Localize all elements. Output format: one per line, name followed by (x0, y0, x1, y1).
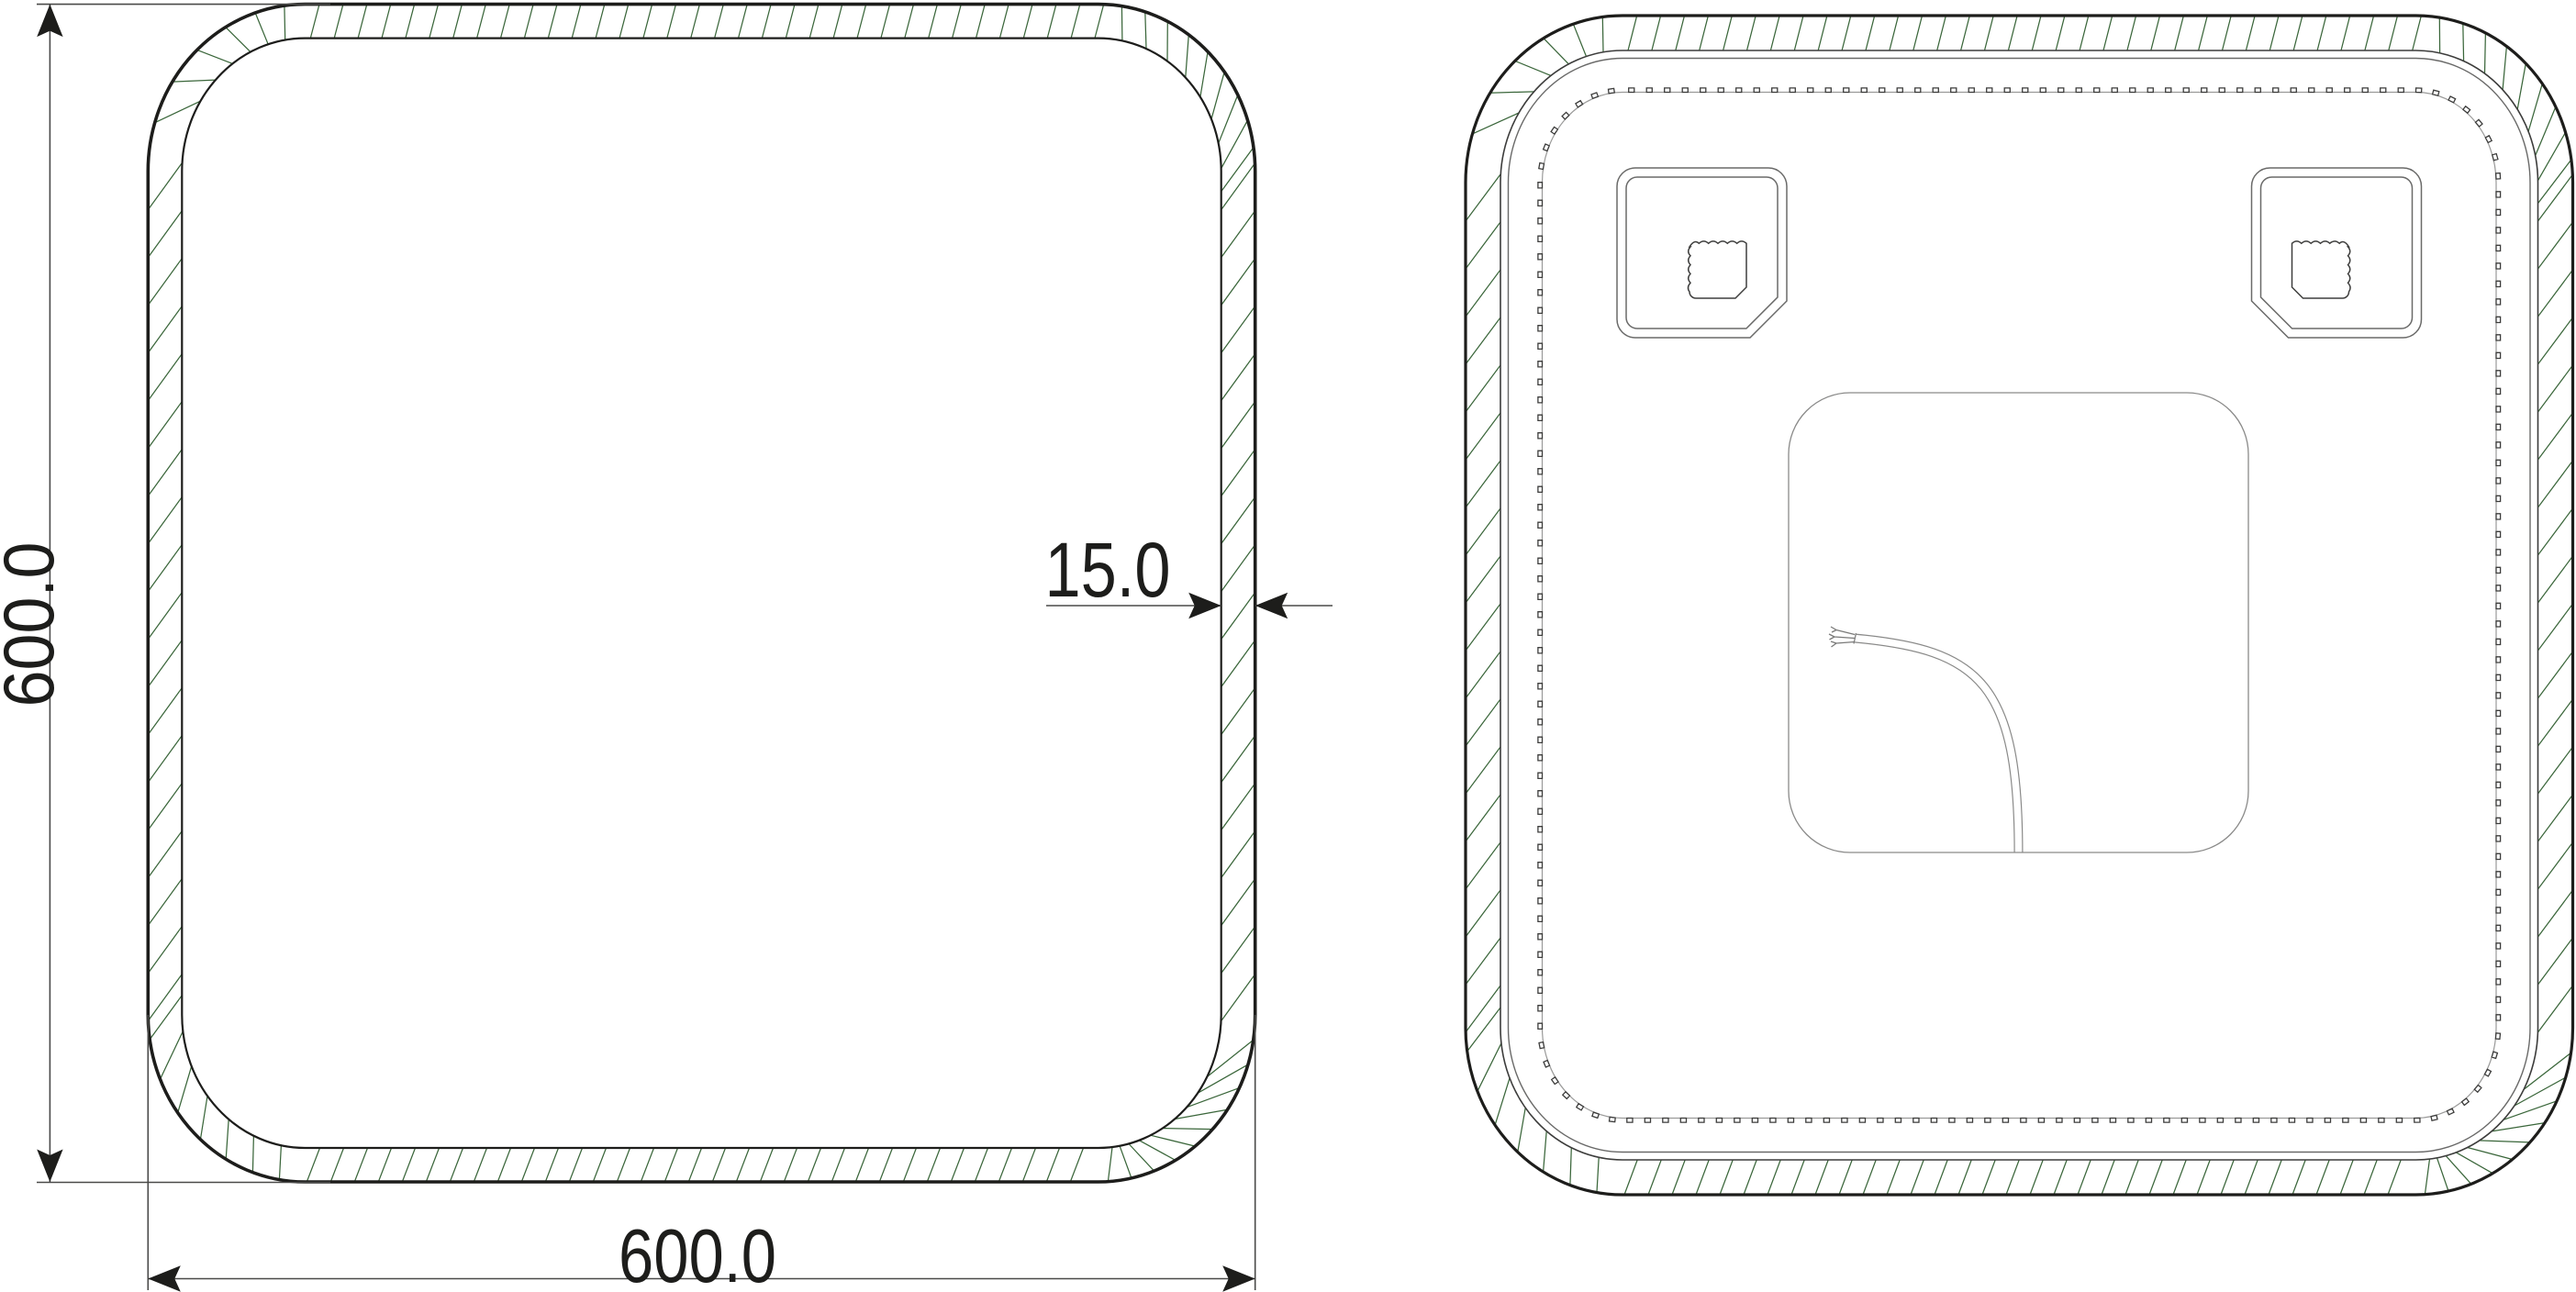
svg-text:15.0: 15.0 (1045, 527, 1171, 613)
svg-text:600.0: 600.0 (619, 1213, 776, 1292)
svg-text:600.0: 600.0 (0, 542, 69, 707)
